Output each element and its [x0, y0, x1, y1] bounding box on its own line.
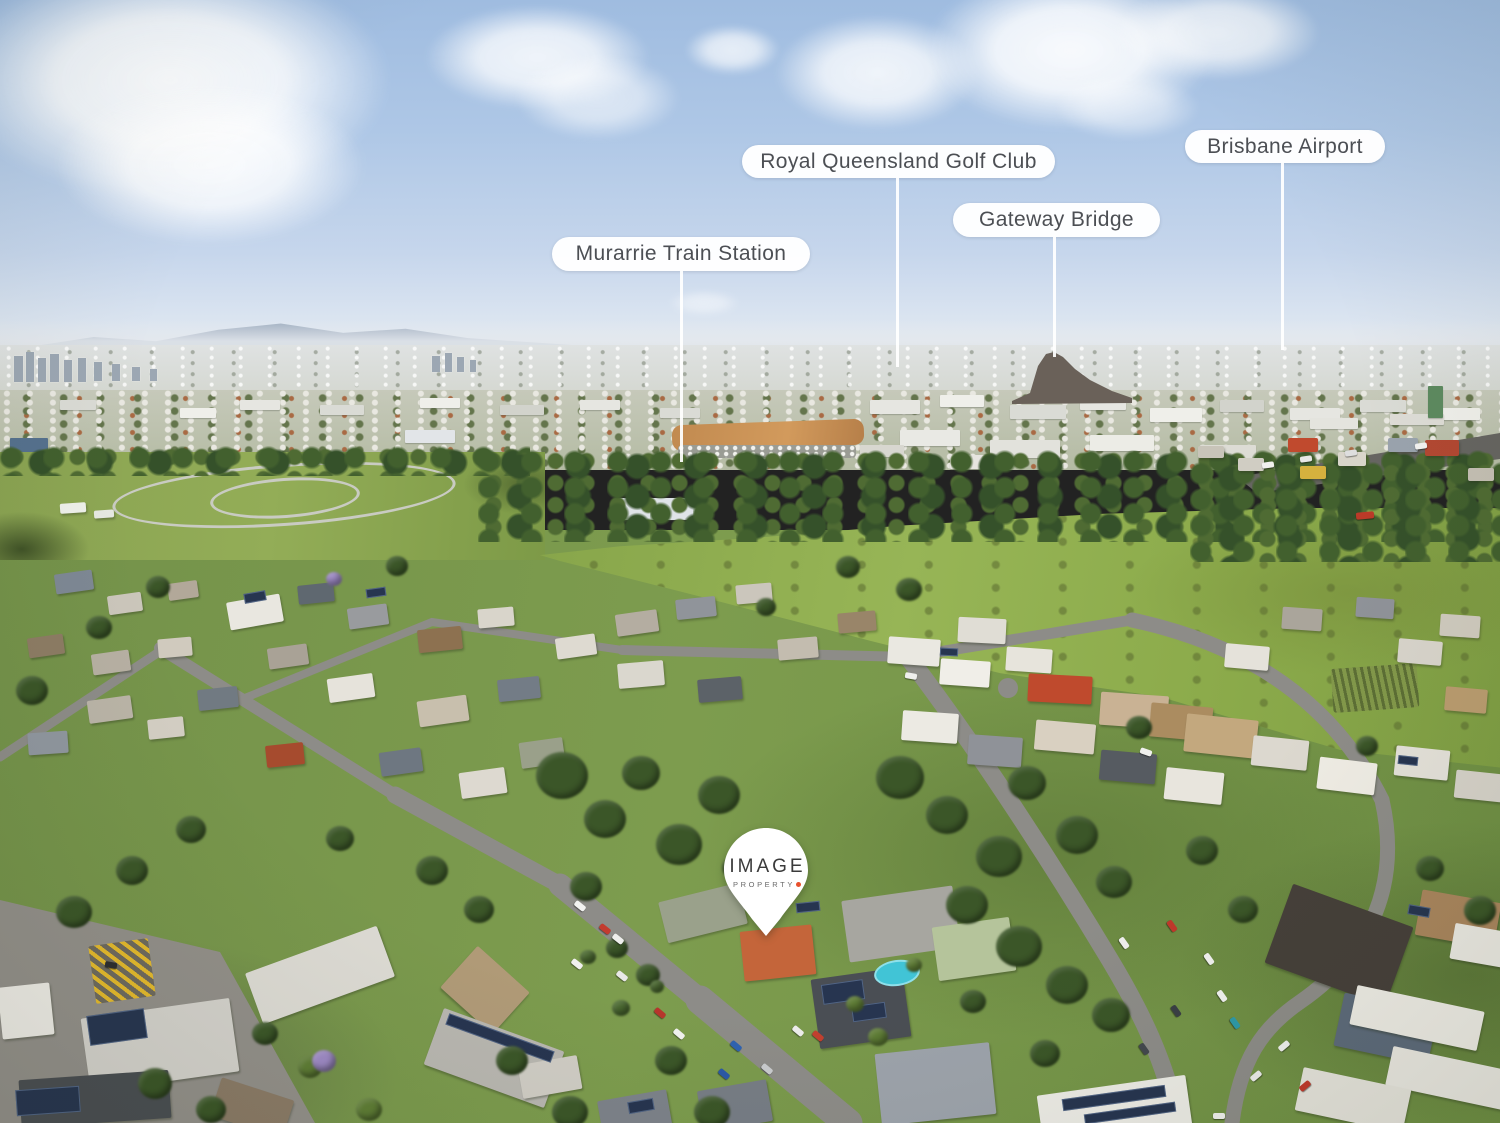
car [1213, 1113, 1225, 1119]
house-roof [887, 636, 941, 667]
house-roof [1281, 607, 1322, 632]
tree [1186, 836, 1218, 865]
house-roof [957, 617, 1006, 644]
tree [580, 950, 596, 964]
label-brisbane-airport: Brisbane Airport [1185, 130, 1385, 163]
house-roof [1034, 719, 1096, 754]
house-roof [939, 658, 991, 687]
brand-name: IMAGE [724, 856, 808, 878]
tree [356, 1098, 382, 1121]
solar-panel [940, 648, 958, 657]
tree [252, 1022, 278, 1045]
house-roof [1027, 673, 1092, 704]
tree [1096, 866, 1132, 898]
tree [16, 676, 48, 705]
house-roof [1288, 438, 1318, 452]
fuel-station-hatching [88, 938, 155, 1004]
tree [655, 1046, 687, 1075]
house-roof [1163, 767, 1224, 805]
house-roof [157, 637, 193, 659]
tree [1056, 816, 1098, 854]
label-pill: Gateway Bridge [953, 203, 1160, 237]
house-roof [675, 596, 717, 620]
house-roof [297, 582, 335, 605]
house-roof [1251, 735, 1310, 771]
street [160, 648, 395, 795]
watermark-logo: IMAGE PROPERTY [724, 856, 808, 889]
label-leader-line [896, 178, 899, 367]
house-roof [617, 660, 665, 689]
house-roof [477, 606, 515, 628]
property-pin: IMAGE PROPERTY [724, 828, 808, 936]
house-roof [60, 502, 87, 514]
label-text: Gateway Bridge [979, 208, 1134, 232]
tree [176, 816, 206, 843]
tree [926, 796, 968, 834]
label-leader-line [1281, 163, 1284, 350]
tree [464, 896, 494, 923]
house-roof [967, 734, 1023, 768]
tree [1092, 998, 1130, 1032]
tree [650, 980, 664, 993]
house-roof [265, 742, 305, 768]
tree [536, 752, 588, 799]
house-roof [777, 636, 819, 660]
solar-panel [1398, 755, 1419, 766]
label-leader-line [1053, 237, 1056, 357]
tree [196, 1096, 226, 1123]
tree [876, 756, 924, 799]
tree [976, 836, 1022, 877]
tree [1030, 1040, 1060, 1067]
tree [612, 1000, 630, 1016]
street [622, 650, 908, 657]
label-pill: Brisbane Airport [1185, 130, 1385, 163]
tree [86, 616, 112, 639]
solar-panel [15, 1086, 81, 1116]
tree [312, 1050, 336, 1072]
tree [1228, 896, 1258, 923]
house-roof [1224, 643, 1270, 671]
tree [386, 556, 408, 576]
tree [906, 958, 922, 972]
tree [896, 578, 922, 601]
label-pill: Royal Queensland Golf Club [742, 145, 1055, 178]
tree [698, 776, 740, 814]
label-pill: Murarrie Train Station [552, 237, 810, 271]
house-roof [0, 982, 55, 1039]
tree [622, 756, 660, 790]
tree [656, 824, 702, 865]
label-leader-line [680, 271, 683, 462]
tree [846, 996, 864, 1012]
tree [584, 800, 626, 838]
house-roof [1355, 597, 1394, 620]
tree [836, 556, 860, 578]
house-roof [1468, 468, 1494, 481]
house-roof [1300, 466, 1326, 479]
label-murarrie-train-station: Murarrie Train Station [552, 237, 810, 271]
tree [1464, 896, 1496, 925]
tree [756, 598, 776, 616]
house-roof [837, 610, 877, 633]
house-roof [197, 686, 239, 711]
tree [868, 1028, 888, 1046]
house-roof [1425, 440, 1459, 456]
label-royal-queensland-golf-club: Royal Queensland Golf Club [742, 145, 1055, 178]
house-roof [1183, 713, 1259, 758]
tree [56, 896, 92, 928]
tree [1416, 856, 1444, 881]
house-roof [497, 676, 541, 702]
label-gateway-bridge: Gateway Bridge [953, 203, 1160, 237]
label-text: Royal Queensland Golf Club [760, 150, 1037, 174]
label-text: Murarrie Train Station [576, 242, 787, 266]
house-roof [1198, 446, 1224, 458]
house-roof [1238, 458, 1264, 471]
house-roof [1397, 638, 1443, 666]
house-roof [1454, 770, 1500, 803]
tree [138, 1068, 172, 1099]
house-roof [1444, 686, 1488, 714]
aerial-photo: Murarrie Train Station Royal Queensland … [0, 0, 1500, 1123]
tree [496, 1046, 528, 1075]
house-roof [27, 731, 68, 756]
house-roof [1439, 614, 1480, 639]
brand-subtitle: PROPERTY [724, 880, 808, 889]
tree [1046, 966, 1088, 1004]
house-roof [901, 710, 959, 744]
house-roof [875, 1042, 997, 1123]
house-roof [1316, 757, 1377, 796]
brand-dot-icon [796, 882, 801, 887]
tree [946, 886, 988, 924]
tree [326, 572, 342, 586]
tree [326, 826, 354, 851]
cul-de-sac [998, 678, 1018, 698]
brand-subtitle-text: PROPERTY [733, 880, 795, 889]
tree [552, 1096, 588, 1123]
tree [146, 576, 170, 598]
tree [1008, 766, 1046, 800]
tree [996, 926, 1042, 967]
tree [1356, 736, 1378, 756]
label-text: Brisbane Airport [1207, 135, 1363, 159]
house-roof [1005, 646, 1053, 673]
house-roof [147, 716, 185, 740]
tree [694, 1096, 730, 1123]
house-roof [417, 626, 463, 653]
house-roof [697, 676, 743, 703]
tree [116, 856, 148, 885]
house-roof [1388, 438, 1418, 452]
tree [416, 856, 448, 885]
house-roof [94, 509, 115, 518]
tree [570, 872, 602, 901]
tree [1126, 716, 1152, 739]
tree [960, 990, 986, 1013]
